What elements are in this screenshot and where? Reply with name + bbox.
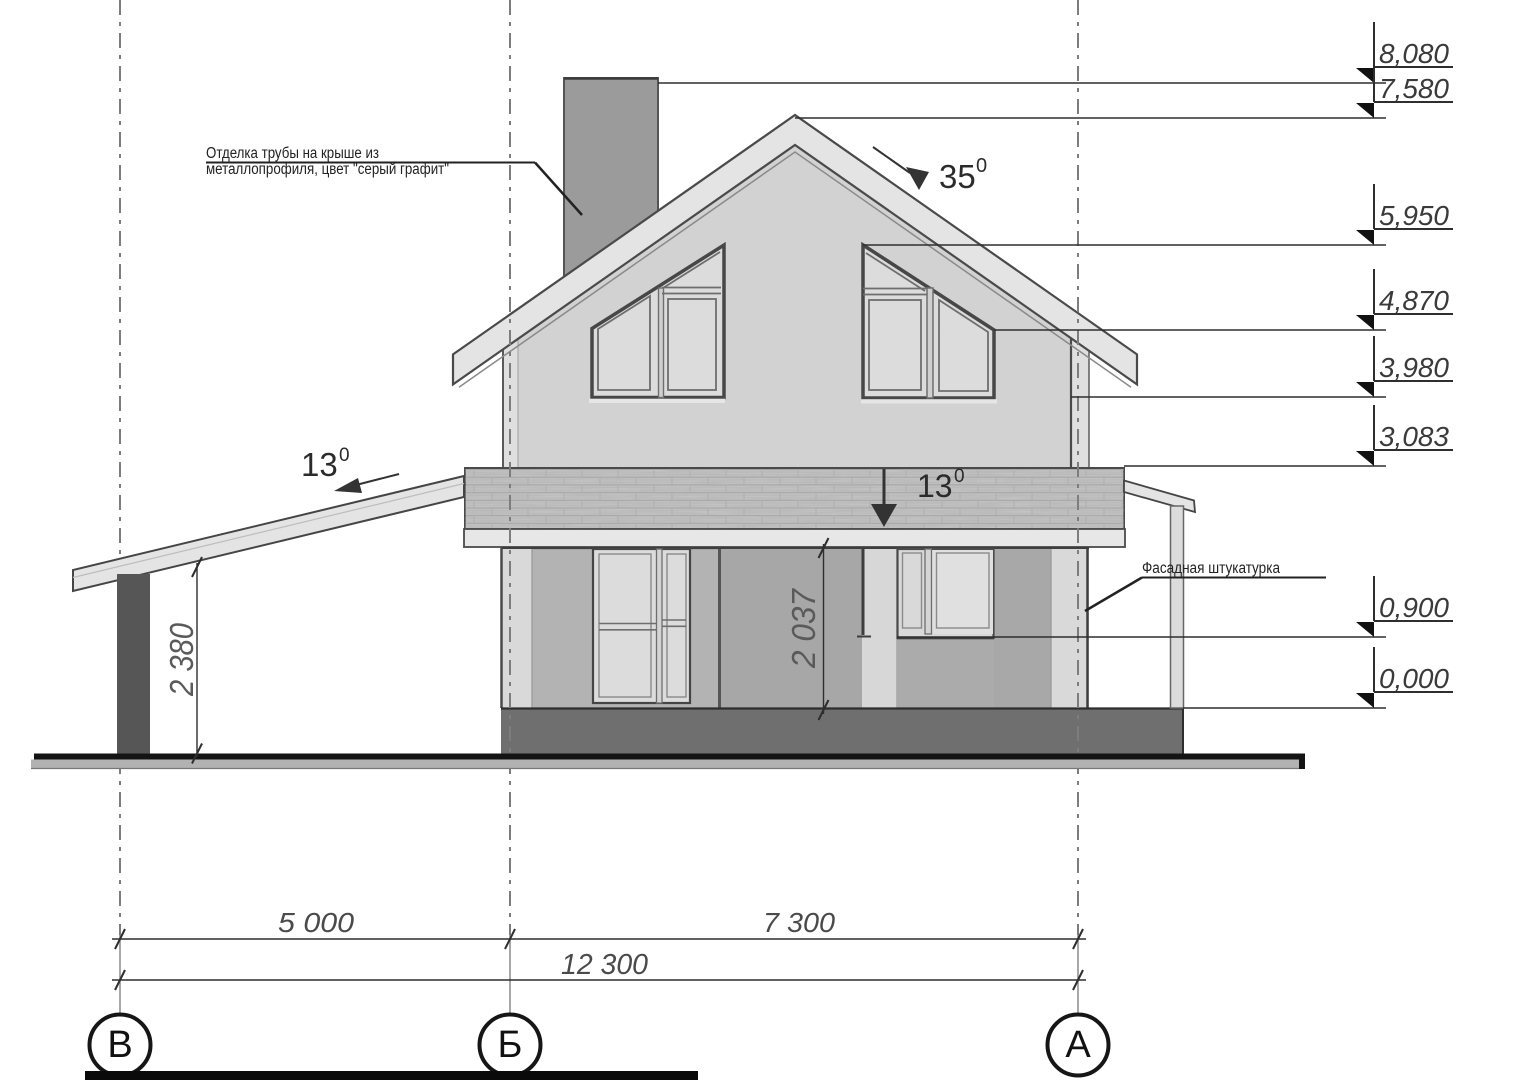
svg-text:12 300: 12 300 [561, 949, 648, 981]
svg-text:2 380: 2 380 [163, 622, 200, 696]
svg-text:0,000: 0,000 [1379, 663, 1449, 694]
svg-text:8,080: 8,080 [1379, 38, 1449, 69]
svg-text:13: 13 [917, 468, 953, 504]
svg-text:2 037: 2 037 [785, 587, 822, 669]
svg-text:В: В [107, 1024, 132, 1066]
svg-text:0: 0 [339, 445, 350, 466]
svg-text:5,950: 5,950 [1379, 200, 1449, 231]
svg-text:5 000: 5 000 [278, 907, 354, 938]
svg-text:Фасадная штукатурка: Фасадная штукатурка [1142, 560, 1280, 577]
svg-text:4,870: 4,870 [1379, 285, 1449, 316]
svg-text:35: 35 [939, 158, 976, 195]
svg-text:13: 13 [301, 446, 338, 483]
svg-text:0: 0 [954, 466, 965, 487]
svg-text:А: А [1065, 1024, 1091, 1066]
svg-text:7 300: 7 300 [763, 907, 835, 938]
svg-text:3,083: 3,083 [1379, 421, 1449, 452]
svg-text:металлопрофиля, цвет "серый гр: металлопрофиля, цвет "серый графит" [206, 161, 449, 178]
svg-text:Отделка трубы на крыше из: Отделка трубы на крыше из [206, 145, 379, 162]
svg-text:0,900: 0,900 [1379, 592, 1449, 623]
svg-text:3,980: 3,980 [1379, 352, 1449, 383]
svg-text:7,580: 7,580 [1379, 73, 1449, 104]
svg-text:Б: Б [498, 1024, 523, 1066]
svg-text:0: 0 [976, 155, 987, 177]
